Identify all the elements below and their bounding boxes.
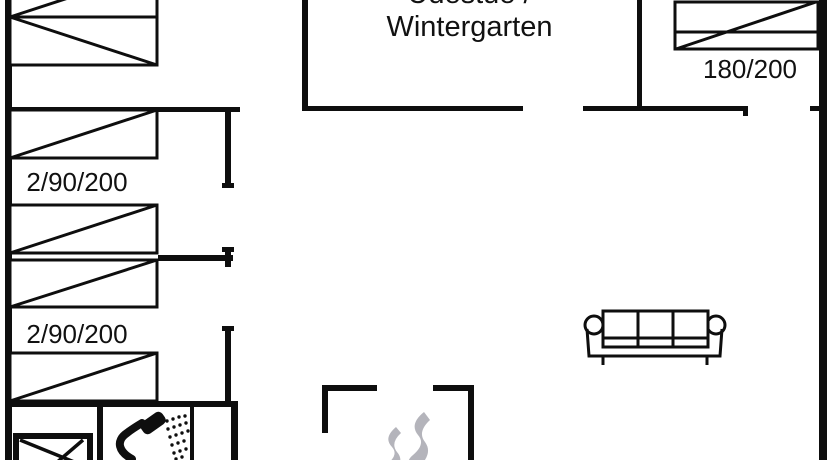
bed-size-label-bunkroom-1: 2/90/200 [12,167,142,198]
double-bed-icon [675,2,818,49]
bed-size-label-bunkroom-2: 2/90/200 [12,319,142,350]
room-label-line1: Udestue / [302,0,637,11]
smoke-wisp [385,427,401,460]
single-bed-icon [10,17,157,65]
single-bed-icon [10,0,157,17]
single-bed-icon [10,353,157,401]
washbasin-icon [16,436,90,460]
room-label-line2: Wintergarten [302,11,637,44]
bed-size-label-double: 180/200 [676,54,824,85]
single-bed-icon [10,260,157,307]
floor-plan: Udestue / Wintergarten 180/200 2/90/200 … [0,0,834,460]
shower-head-icon [120,410,190,460]
smoke-wisp [409,412,431,460]
room-label-conservatory: Udestue / Wintergarten [302,0,637,44]
sofa-icon [585,311,725,365]
wood-stove-smoke-icon [325,388,471,460]
single-bed-icon [10,205,157,253]
single-bed-icon [10,110,157,158]
